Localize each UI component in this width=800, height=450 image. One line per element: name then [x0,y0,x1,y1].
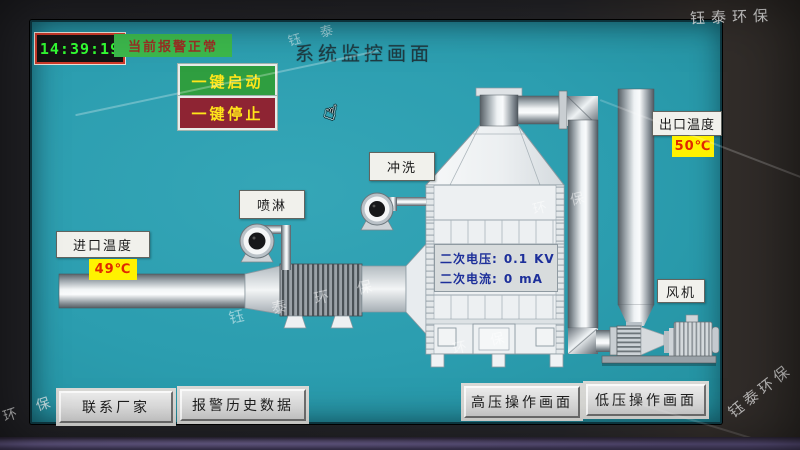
spray-pump [240,224,291,270]
low-voltage-screen-button[interactable]: 低压操作画面 [586,384,706,416]
flush-label: 冲洗 [369,152,435,181]
one-key-start-button[interactable]: 一键启动 [178,64,277,98]
secondary-voltage-row: 二次电压:0.1KV [440,250,557,267]
secondary-current-row: 二次电流:0mA [440,270,557,287]
high-voltage-screen-button[interactable]: 高压操作画面 [464,386,580,418]
contact-manufacturer-button[interactable]: 联系厂家 [59,391,173,423]
clock-display: 14:39:19 [35,33,125,64]
flush-pump [361,193,426,230]
fan-label: 风机 [657,279,705,303]
alarm-status-banner: 当前报警正常 [114,34,232,57]
one-key-stop-button[interactable]: 一键停止 [178,96,277,130]
alarm-history-button[interactable]: 报警历史数据 [180,389,306,421]
secondary-voltage-label: 二次电压: [440,252,498,266]
spray-label: 喷淋 [239,190,305,219]
secondary-current-value: 0 [504,272,513,286]
secondary-readings-panel: 二次电压:0.1KV 二次电流:0mA [434,244,558,292]
monitor-stand-glow [0,437,800,450]
outlet-temp-label: 出口温度 [652,111,722,136]
watermark-bezel-bottom-right: 钰泰环保 [724,359,797,422]
secondary-current-unit: mA [519,272,543,286]
secondary-current-label: 二次电流: [440,272,498,286]
outlet-temp-value: 50℃ [672,136,714,157]
tower-inlet-duct [362,244,426,334]
hmi-screen: 14:39:19 当前报警正常 系统监控画面 一键启动 一键停止 ☝ 喷淋 冲洗… [30,20,722,424]
monitor-photo: 14:39:19 当前报警正常 系统监控画面 一键启动 一键停止 ☝ 喷淋 冲洗… [0,0,800,450]
exhaust-stack [618,89,654,330]
inlet-temp-value: 49℃ [89,259,137,280]
fan-base [602,356,716,363]
process-diagram [32,22,720,422]
secondary-voltage-value: 0.1 [504,252,528,266]
corrugated-duct [280,264,362,328]
secondary-voltage-unit: KV [534,252,555,266]
page-title: 系统监控画面 [295,39,433,66]
inlet-temp-label: 进口温度 [56,231,150,258]
fan-unit [602,315,719,366]
